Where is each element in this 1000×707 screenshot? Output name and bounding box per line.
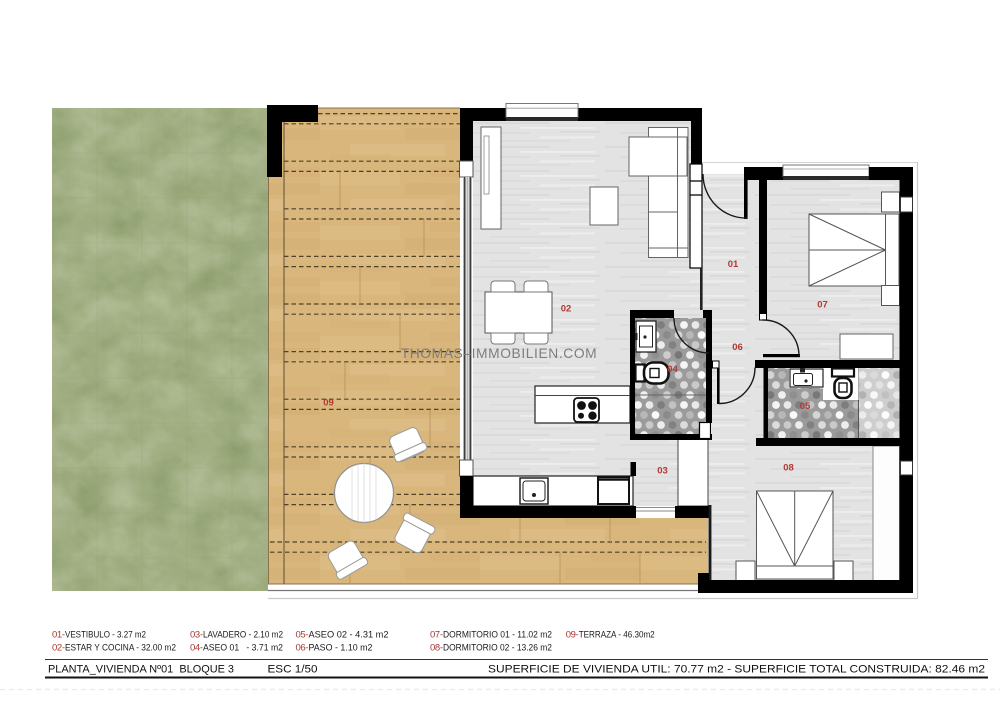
svg-text:02-: 02- [52,643,65,654]
svg-text:VESTIBULO - 3.27 m2: VESTIBULO - 3.27 m2 [65,630,146,641]
svg-text:03-: 03- [190,630,203,641]
svg-text:TERRAZA - 46.30m2: TERRAZA - 46.30m2 [579,630,655,641]
svg-text:09-: 09- [566,630,579,641]
svg-text:04-: 04- [190,643,203,654]
svg-text:05: 05 [800,401,811,412]
svg-text:04: 04 [667,364,678,375]
svg-text:02: 02 [561,304,572,315]
svg-text:PASO - 1.10 m2: PASO - 1.10 m2 [309,643,373,654]
svg-text:07: 07 [817,300,828,311]
svg-text:ESTAR Y COCINA - 32.00 m2: ESTAR Y COCINA - 32.00 m2 [65,643,176,654]
svg-text:06-: 06- [296,643,309,654]
svg-text:ESC 1/50: ESC 1/50 [268,664,318,676]
svg-text:05-: 05- [296,630,309,641]
svg-text:ASEO 02 - 4.31 m2: ASEO 02 - 4.31 m2 [309,630,389,641]
svg-text:LAVADERO - 2.10 m2: LAVADERO - 2.10 m2 [203,630,283,641]
svg-text:08-: 08- [430,643,443,654]
svg-text:03: 03 [657,466,668,477]
svg-text:ASEO 01 - 3.71 m2: ASEO 01 - 3.71 m2 [203,643,283,654]
svg-text:DORMITORIO 02 - 13.26 m2: DORMITORIO 02 - 13.26 m2 [443,643,552,654]
svg-text:06: 06 [732,342,743,353]
svg-text:01: 01 [728,259,739,270]
svg-text:08: 08 [783,463,794,474]
svg-text:PLANTA_VIVIENDA Nº01 BLOQUE 3: PLANTA_VIVIENDA Nº01 BLOQUE 3 [48,664,234,676]
svg-text:01-: 01- [52,630,65,641]
svg-text:07-: 07- [430,630,443,641]
svg-text:DORMITORIO 01 - 11.02 m2: DORMITORIO 01 - 11.02 m2 [443,630,552,641]
svg-text:SUPERFICIE DE VIVIENDA UTIL: 7: SUPERFICIE DE VIVIENDA UTIL: 70.77 m2 - … [488,664,985,676]
svg-text:THOMAS–IMMOBILIEN.COM: THOMAS–IMMOBILIEN.COM [401,346,598,361]
svg-text:09: 09 [323,398,334,409]
